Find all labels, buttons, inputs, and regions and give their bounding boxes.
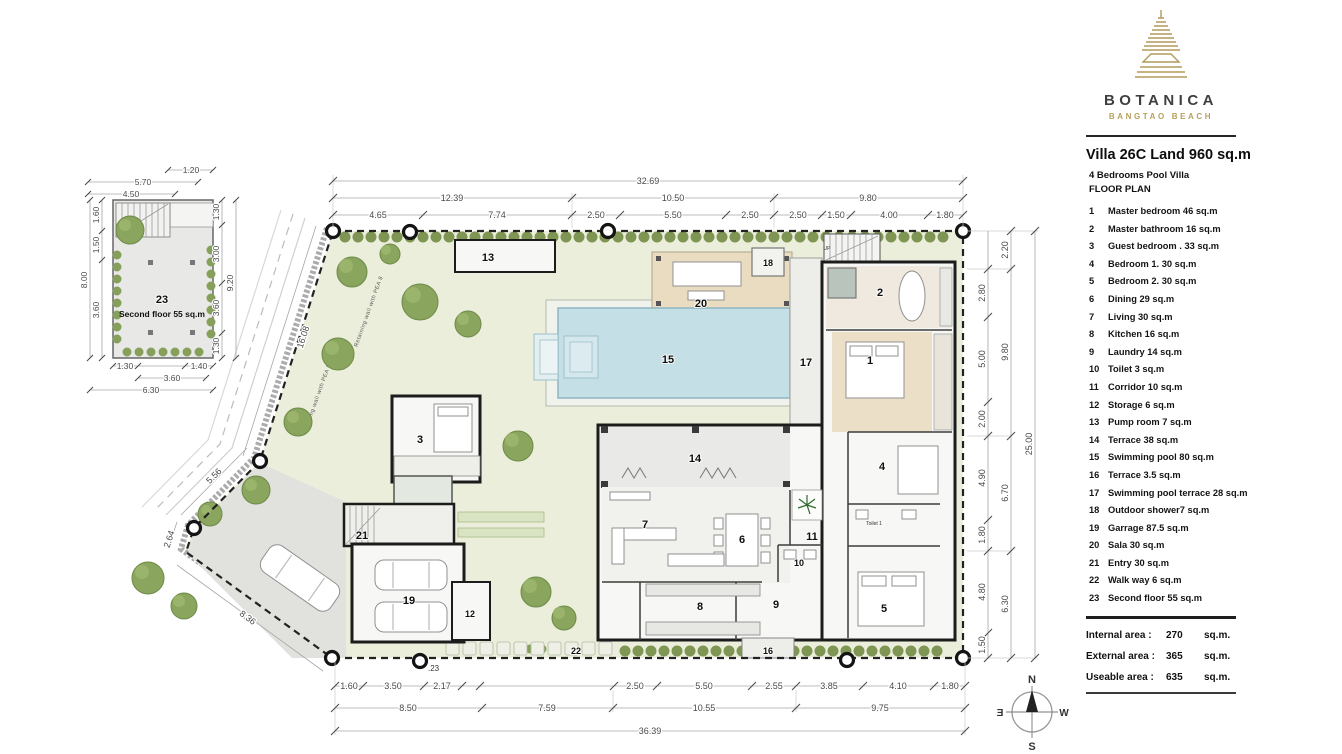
bathtub bbox=[899, 271, 925, 321]
island-counter bbox=[668, 554, 724, 566]
divider bbox=[1086, 135, 1236, 137]
tree bbox=[242, 476, 270, 504]
column bbox=[692, 426, 699, 433]
legend-room-label: Outdoor shower7 sq.m bbox=[1108, 505, 1209, 523]
dim-label: 5.56 bbox=[204, 466, 223, 485]
dim-label: 2.00 bbox=[977, 410, 987, 428]
dim-label: 2.55 bbox=[765, 681, 783, 691]
dim-label: 3.00 bbox=[211, 245, 221, 262]
dim-label: 2.64 bbox=[162, 529, 177, 549]
total-row: Internal area : 270 sq.m. bbox=[1086, 625, 1236, 646]
total-label: Useable area : bbox=[1086, 672, 1166, 683]
pool-step bbox=[570, 342, 592, 372]
room-number-19: 19 bbox=[403, 595, 415, 607]
legend-room-label: Pump room 7 sq.m bbox=[1108, 417, 1192, 435]
legend-room-number: 11 bbox=[1089, 382, 1108, 400]
legend-row: 12 Storage 6 sq.m bbox=[1089, 400, 1236, 418]
dim-label: 10.50 bbox=[662, 193, 685, 203]
room-legend: 1 Master bedroom 46 sq.m 2 Master bathro… bbox=[1089, 206, 1236, 611]
compass-needle bbox=[1026, 690, 1038, 712]
legend-room-number: 6 bbox=[1089, 294, 1108, 312]
floor-plan-label: FLOOR PLAN bbox=[1089, 184, 1236, 195]
dim-label: 1.40 bbox=[191, 361, 208, 371]
legend-room-number: 3 bbox=[1089, 241, 1108, 259]
dim-label: 5.50 bbox=[664, 210, 682, 220]
room-number-8: 8 bbox=[697, 601, 703, 613]
total-value: 635 bbox=[1166, 672, 1204, 683]
sink bbox=[902, 510, 916, 519]
legend-room-label: Terrace 3.5 sq.m bbox=[1108, 470, 1181, 488]
dim-label: 32.69 bbox=[637, 176, 660, 186]
legend-room-label: Garrage 87.5 sq.m bbox=[1108, 523, 1189, 541]
second-floor-label: Second floor 55 sq.m bbox=[119, 309, 205, 319]
dim-label: 4.65 bbox=[369, 210, 387, 220]
legend-room-number: 9 bbox=[1089, 347, 1108, 365]
vanity bbox=[940, 268, 952, 326]
second-floor-plan: 23 Second floor 55 sq.m 1.20 5.70 4.50 1… bbox=[79, 165, 239, 395]
legend-row: 5 Bedroom 2. 30 sq.m bbox=[1089, 276, 1236, 294]
sala-sofa bbox=[673, 262, 741, 286]
dim-label: 9.80 bbox=[859, 193, 877, 203]
dim-label: 3.85 bbox=[820, 681, 838, 691]
legend-room-label: Storage 6 sq.m bbox=[1108, 400, 1175, 418]
room-number-14: 14 bbox=[689, 453, 702, 465]
dim-label: 12.39 bbox=[441, 193, 464, 203]
legend-room-number: 14 bbox=[1089, 435, 1108, 453]
room-number-7: 7 bbox=[642, 519, 648, 531]
column bbox=[601, 481, 608, 488]
dim-label: 4.00 bbox=[880, 210, 898, 220]
legend-room-number: 18 bbox=[1089, 505, 1108, 523]
room-number-11: 11 bbox=[806, 531, 818, 543]
legend-room-number: 5 bbox=[1089, 276, 1108, 294]
parked-car bbox=[375, 560, 447, 590]
sala-column bbox=[656, 301, 661, 306]
dim-label: 5.50 bbox=[695, 681, 713, 691]
legend-room-label: Swimming pool terrace 28 sq.m bbox=[1108, 488, 1248, 506]
tree bbox=[402, 284, 438, 320]
room-number-20: 20 bbox=[695, 298, 707, 310]
total-value: 270 bbox=[1166, 630, 1204, 641]
villa-title: Villa 26C Land 960 sq.m bbox=[1086, 147, 1236, 163]
total-label: Internal area : bbox=[1086, 630, 1166, 641]
pillow bbox=[438, 407, 468, 416]
toilet1-label: Toilet 1 bbox=[866, 521, 882, 527]
dim-label: 4.50 bbox=[123, 189, 140, 199]
tree bbox=[116, 216, 144, 244]
tree bbox=[337, 257, 367, 287]
room-number-4: 4 bbox=[879, 461, 886, 473]
total-unit: sq.m. bbox=[1204, 630, 1230, 641]
dim-label: 1.20 bbox=[183, 165, 200, 175]
compass: N S E W bbox=[996, 674, 1068, 753]
legend-room-number: 10 bbox=[1089, 364, 1108, 382]
planter bbox=[458, 512, 544, 522]
legend-room-label: Terrace 38 sq.m bbox=[1108, 435, 1178, 453]
legend-row: 7 Living 30 sq.m bbox=[1089, 312, 1236, 330]
legend-row: 13 Pump room 7 sq.m bbox=[1089, 417, 1236, 435]
room-number-13: 13 bbox=[482, 252, 494, 264]
floor-plan-sheet: { "branding": {"name": "BOTANICA", "subt… bbox=[0, 0, 1342, 754]
legend-room-label: Sala 30 sq.m bbox=[1108, 540, 1164, 558]
legend-row: 1 Master bedroom 46 sq.m bbox=[1089, 206, 1236, 224]
dim-label: 8.50 bbox=[399, 703, 417, 713]
legend-room-label: Living 30 sq.m bbox=[1108, 312, 1173, 330]
legend-room-label: Dining 29 sq.m bbox=[1108, 294, 1174, 312]
tree bbox=[380, 244, 400, 264]
sala-column bbox=[784, 256, 789, 261]
tree bbox=[521, 577, 551, 607]
compass-n: N bbox=[1028, 674, 1036, 686]
roof-overhang bbox=[170, 203, 213, 227]
room-number-3: 3 bbox=[417, 434, 423, 446]
legend-room-label: Kitchen 16 sq.m bbox=[1108, 329, 1179, 347]
legend-room-label: Toilet 3 sq.m bbox=[1108, 364, 1164, 382]
room-number-23: 23 bbox=[156, 294, 168, 306]
kitchen-appliances bbox=[646, 622, 760, 635]
pillow bbox=[892, 576, 916, 586]
legend-row: 16 Terrace 3.5 sq.m bbox=[1089, 470, 1236, 488]
total-row: External area : 365 sq.m. bbox=[1086, 646, 1236, 667]
room-number-18: 18 bbox=[763, 258, 773, 268]
dim-label: 3.60 bbox=[91, 301, 101, 318]
pagoda-logo-icon bbox=[1131, 8, 1191, 88]
legend-row: 11 Corridor 10 sq.m bbox=[1089, 382, 1236, 400]
column bbox=[190, 260, 195, 265]
dim-label: 25.00 bbox=[1024, 433, 1034, 456]
toilet-fixture bbox=[856, 510, 868, 519]
total-label: External area : bbox=[1086, 651, 1166, 662]
sala-column bbox=[784, 301, 789, 306]
total-row: Useable area : 635 sq.m. bbox=[1086, 667, 1236, 688]
legend-room-label: Master bathroom 16 sq.m bbox=[1108, 224, 1221, 242]
legend-room-number: 23 bbox=[1089, 593, 1108, 611]
compass-s: S bbox=[1028, 741, 1035, 753]
room-number-12: 12 bbox=[465, 609, 475, 619]
dim-label: 2.50 bbox=[587, 210, 605, 220]
room-number-6: 6 bbox=[739, 534, 745, 546]
legend-row: 14 Terrace 38 sq.m bbox=[1089, 435, 1236, 453]
sala-column bbox=[656, 256, 661, 261]
room-number-15: 15 bbox=[662, 354, 674, 366]
area-totals: Internal area : 270 sq.m. External area … bbox=[1086, 616, 1236, 694]
dim-label: 2.80 bbox=[977, 284, 987, 302]
legend-room-number: 15 bbox=[1089, 452, 1108, 470]
dim-label: 5.00 bbox=[977, 350, 987, 368]
pool-step bbox=[540, 340, 558, 374]
info-panel: BOTANICA BANGTAO BEACH Villa 26C Land 96… bbox=[1086, 8, 1236, 694]
legend-row: 3 Guest bedroom . 33 sq.m bbox=[1089, 241, 1236, 259]
legend-room-number: 21 bbox=[1089, 558, 1108, 576]
legend-row: 23 Second floor 55 sq.m bbox=[1089, 593, 1236, 611]
column bbox=[148, 260, 153, 265]
legend-room-label: Second floor 55 sq.m bbox=[1108, 593, 1202, 611]
shower bbox=[828, 268, 856, 298]
tree bbox=[198, 502, 222, 526]
legend-room-label: Laundry 14 sq.m bbox=[1108, 347, 1182, 365]
dim-label: 4.10 bbox=[889, 681, 907, 691]
wardrobe bbox=[394, 456, 480, 476]
dim-label: 3.60 bbox=[164, 373, 181, 383]
legend-row: 10 Toilet 3 sq.m bbox=[1089, 364, 1236, 382]
tree bbox=[552, 606, 576, 630]
tree bbox=[171, 593, 197, 619]
tree bbox=[455, 311, 481, 337]
tree bbox=[503, 431, 533, 461]
legend-room-number: 12 bbox=[1089, 400, 1108, 418]
legend-row: 2 Master bathroom 16 sq.m bbox=[1089, 224, 1236, 242]
chair bbox=[761, 518, 770, 529]
tv-console bbox=[610, 492, 650, 500]
dim-label: 9.80 bbox=[1000, 343, 1010, 361]
dim-label: 2.20 bbox=[1000, 241, 1010, 259]
legend-room-label: Corridor 10 sq.m bbox=[1108, 382, 1182, 400]
legend-room-label: Bedroom 1. 30 sq.m bbox=[1108, 259, 1196, 277]
dim-label: 1.80 bbox=[941, 681, 959, 691]
sofa bbox=[612, 528, 624, 564]
villa-subtitle: 4 Bedrooms Pool Villa bbox=[1089, 170, 1236, 181]
legend-room-number: 22 bbox=[1089, 575, 1108, 593]
dim-label: 10.55 bbox=[693, 703, 716, 713]
pillow bbox=[862, 576, 886, 586]
legend-row: 15 Swimming pool 80 sq.m bbox=[1089, 452, 1236, 470]
column bbox=[783, 426, 790, 433]
tree bbox=[132, 562, 164, 594]
brand-name: BOTANICA bbox=[1086, 92, 1236, 109]
room-number-2: 2 bbox=[877, 287, 883, 299]
dim-label: 1.30 bbox=[211, 337, 221, 354]
dim-label: 9.75 bbox=[871, 703, 889, 713]
dim-label: 1.80 bbox=[977, 526, 987, 544]
column bbox=[783, 481, 790, 488]
dim-label: 9.20 bbox=[225, 274, 235, 291]
legend-room-label: Bedroom 2. 30 sq.m bbox=[1108, 276, 1196, 294]
total-unit: sq.m. bbox=[1204, 672, 1230, 683]
dim-label: 2.50 bbox=[741, 210, 759, 220]
legend-row: 21 Entry 30 sq.m bbox=[1089, 558, 1236, 576]
kitchen-counter bbox=[646, 584, 760, 596]
tree bbox=[322, 338, 354, 370]
legend-room-number: 4 bbox=[1089, 259, 1108, 277]
legend-room-label: Master bedroom 46 sq.m bbox=[1108, 206, 1218, 224]
legend-row: 19 Garrage 87.5 sq.m bbox=[1089, 523, 1236, 541]
dimensions-bottom: 1.60 3.50 2.17 2.50 5.50 2.55 3.85 4.10 … bbox=[331, 662, 969, 736]
chair bbox=[714, 518, 723, 529]
pump-room bbox=[455, 240, 555, 272]
legend-room-label: Swimming pool 80 sq.m bbox=[1108, 452, 1214, 470]
dim-label: 2.50 bbox=[789, 210, 807, 220]
legend-row: 18 Outdoor shower7 sq.m bbox=[1089, 505, 1236, 523]
legend-room-number: 7 bbox=[1089, 312, 1108, 330]
column bbox=[601, 426, 608, 433]
dim-label: 3.50 bbox=[384, 681, 402, 691]
legend-row: 17 Swimming pool terrace 28 sq.m bbox=[1089, 488, 1236, 506]
dim-label: 2.17 bbox=[433, 681, 451, 691]
legend-row: 6 Dining 29 sq.m bbox=[1089, 294, 1236, 312]
dimensions-top: 32.69 12.39 10.50 9.80 4.65 7.74 2.50 5.… bbox=[329, 175, 967, 228]
room-number-22: 22 bbox=[571, 646, 581, 656]
compass-e: E bbox=[996, 708, 1003, 719]
dim-label: 36.39 bbox=[639, 726, 662, 736]
chair bbox=[761, 552, 770, 563]
total-unit: sq.m. bbox=[1204, 651, 1230, 662]
tree bbox=[284, 408, 312, 436]
dim-label: 1.50 bbox=[91, 236, 101, 253]
room-number-10: 10 bbox=[794, 558, 804, 568]
legend-room-number: 20 bbox=[1089, 540, 1108, 558]
pillow bbox=[876, 346, 898, 356]
bed bbox=[898, 446, 938, 494]
brand-subtitle: BANGTAO BEACH bbox=[1086, 112, 1236, 121]
legend-row: 9 Laundry 14 sq.m bbox=[1089, 347, 1236, 365]
legend-room-number: 2 bbox=[1089, 224, 1108, 242]
dim-label: 1.60 bbox=[340, 681, 358, 691]
dim-label: 5.70 bbox=[135, 177, 152, 187]
dim-label: 1.30 bbox=[211, 203, 221, 220]
legend-room-number: 19 bbox=[1089, 523, 1108, 541]
up-label: UP bbox=[824, 246, 832, 252]
chair bbox=[714, 535, 723, 546]
legend-room-label: Guest bedroom . 33 sq.m bbox=[1108, 241, 1219, 259]
dim-label: 6.30 bbox=[143, 385, 160, 395]
dim-label: 1.30 bbox=[117, 361, 134, 371]
planter bbox=[458, 528, 544, 537]
column bbox=[148, 330, 153, 335]
legend-room-number: 1 bbox=[1089, 206, 1108, 224]
room-number-16: 16 bbox=[763, 646, 773, 656]
column bbox=[190, 330, 195, 335]
marker-offset-label: .23 bbox=[428, 664, 440, 673]
legend-room-number: 17 bbox=[1089, 488, 1108, 506]
room-number-17: 17 bbox=[800, 357, 812, 369]
room-number-9: 9 bbox=[773, 599, 779, 611]
legend-room-number: 8 bbox=[1089, 329, 1108, 347]
dim-label: 2.50 bbox=[626, 681, 644, 691]
dim-label: 7.74 bbox=[488, 210, 506, 220]
room-number-1: 1 bbox=[867, 355, 873, 367]
dim-label: 4.80 bbox=[977, 583, 987, 601]
legend-room-label: Walk way 6 sq.m bbox=[1108, 575, 1182, 593]
legend-row: 4 Bedroom 1. 30 sq.m bbox=[1089, 259, 1236, 277]
dim-label: 1.60 bbox=[91, 206, 101, 223]
dim-label: 1.50 bbox=[827, 210, 845, 220]
dim-label: 6.30 bbox=[1000, 595, 1010, 613]
legend-room-number: 13 bbox=[1089, 417, 1108, 435]
dim-label: 3.60 bbox=[211, 299, 221, 316]
dim-label: 1.50 bbox=[977, 636, 987, 654]
dim-label: 7.59 bbox=[538, 703, 556, 713]
sink bbox=[804, 550, 816, 559]
dim-label: 8.00 bbox=[79, 271, 89, 288]
dim-label: 4.90 bbox=[977, 469, 987, 487]
legend-row: 22 Walk way 6 sq.m bbox=[1089, 575, 1236, 593]
dim-label: 6.70 bbox=[1000, 484, 1010, 502]
legend-row: 8 Kitchen 16 sq.m bbox=[1089, 329, 1236, 347]
dim-label: 1.80 bbox=[936, 210, 954, 220]
room-number-5: 5 bbox=[881, 603, 887, 615]
total-value: 365 bbox=[1166, 651, 1204, 662]
room-number-21: 21 bbox=[356, 530, 368, 542]
closet bbox=[934, 334, 952, 430]
dimensions-right: 2.80 5.00 2.00 4.90 1.80 4.80 1.50 2.20 … bbox=[967, 227, 1039, 662]
legend-room-number: 16 bbox=[1089, 470, 1108, 488]
legend-room-label: Entry 30 sq.m bbox=[1108, 558, 1169, 576]
compass-w: W bbox=[1059, 708, 1069, 719]
legend-row: 20 Sala 30 sq.m bbox=[1089, 540, 1236, 558]
chair bbox=[761, 535, 770, 546]
